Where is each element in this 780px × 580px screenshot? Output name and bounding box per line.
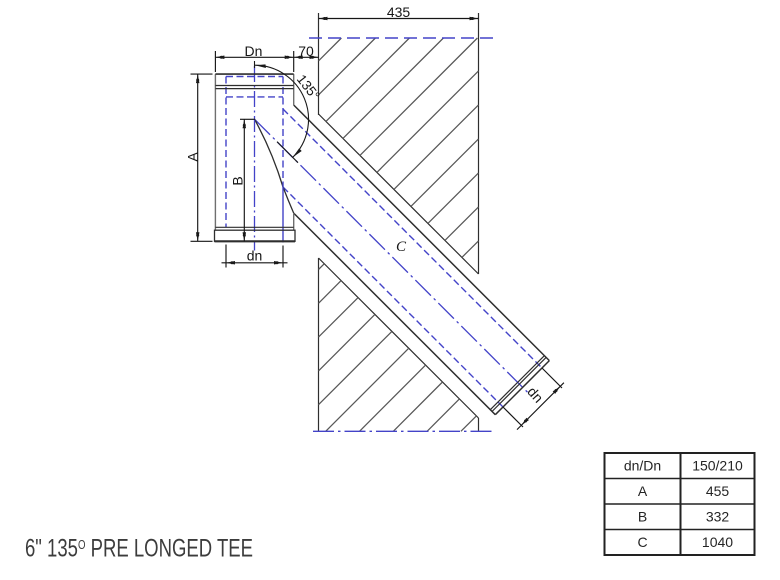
svg-text:B: B xyxy=(230,176,246,185)
svg-text:1040: 1040 xyxy=(702,534,733,550)
svg-text:dn: dn xyxy=(247,248,263,264)
svg-text:B: B xyxy=(638,509,647,525)
svg-text:C: C xyxy=(637,534,647,550)
svg-text:435: 435 xyxy=(387,4,411,20)
svg-text:dn/Dn: dn/Dn xyxy=(624,458,661,474)
svg-text:332: 332 xyxy=(706,509,730,525)
svg-text:A: A xyxy=(184,152,200,162)
svg-text:6" 135O PRE LONGED TEE: 6" 135O PRE LONGED TEE xyxy=(25,535,253,563)
svg-text:dn: dn xyxy=(524,383,546,405)
svg-text:A: A xyxy=(638,483,648,499)
svg-text:150/210: 150/210 xyxy=(692,458,743,474)
svg-text:455: 455 xyxy=(706,483,730,499)
svg-text:70: 70 xyxy=(298,43,314,59)
svg-text:Dn: Dn xyxy=(245,43,263,59)
svg-text:C: C xyxy=(396,239,407,255)
